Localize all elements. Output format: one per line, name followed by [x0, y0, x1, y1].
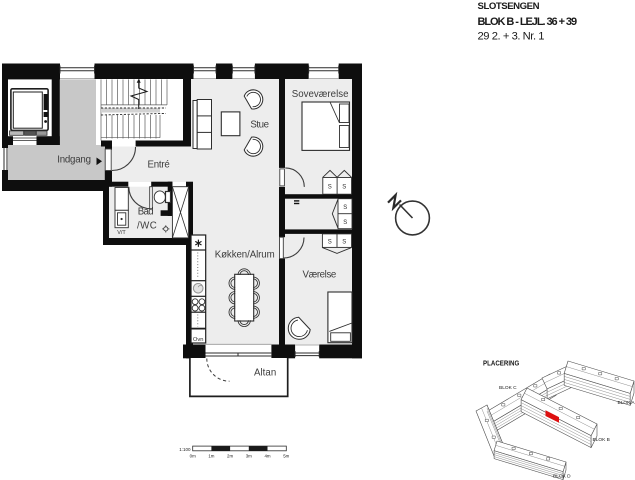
svg-text:S: S [342, 185, 346, 191]
svg-text:S: S [328, 185, 332, 191]
svg-text:PLACERING: PLACERING [483, 358, 519, 367]
svg-text:5m: 5m [283, 454, 289, 459]
svg-text:BLOK B: BLOK B [593, 437, 610, 443]
svg-text:Entré: Entré [147, 160, 169, 171]
svg-text:2m: 2m [227, 454, 233, 459]
svg-text:4m: 4m [264, 454, 270, 459]
svg-text:1:100: 1:100 [179, 447, 191, 452]
svg-text:0m: 0m [190, 454, 196, 459]
svg-text:SLOTSENGEN: SLOTSENGEN [478, 1, 540, 12]
svg-text:29 2. + 3. Nr. 1: 29 2. + 3. Nr. 1 [478, 30, 545, 42]
svg-text:BLOK C: BLOK C [499, 385, 517, 391]
svg-text:Soveværelse: Soveværelse [292, 89, 349, 100]
svg-text:Køkken/Alrum: Køkken/Alrum [215, 249, 275, 260]
svg-text:3m: 3m [246, 454, 252, 459]
svg-text:BLOK D: BLOK D [553, 473, 571, 479]
svg-text:1m: 1m [208, 454, 214, 459]
svg-text:Indgang: Indgang [57, 155, 91, 166]
svg-text:Ovn: Ovn [193, 337, 204, 343]
svg-text:S: S [328, 239, 332, 245]
svg-text:S: S [343, 205, 347, 211]
svg-text:Bad: Bad [138, 206, 154, 217]
svg-text:S: S [342, 239, 346, 245]
svg-text:S: S [343, 220, 347, 226]
svg-text:Stue: Stue [250, 119, 269, 130]
svg-text:BLOK B - LEJL. 36 + 39: BLOK B - LEJL. 36 + 39 [478, 16, 578, 28]
svg-text:Altan: Altan [254, 367, 276, 378]
svg-text:Værelse: Værelse [303, 269, 337, 280]
svg-text:/WC: /WC [137, 221, 157, 232]
svg-text:V/T: V/T [117, 230, 126, 236]
svg-text:BLOK A: BLOK A [618, 400, 635, 406]
